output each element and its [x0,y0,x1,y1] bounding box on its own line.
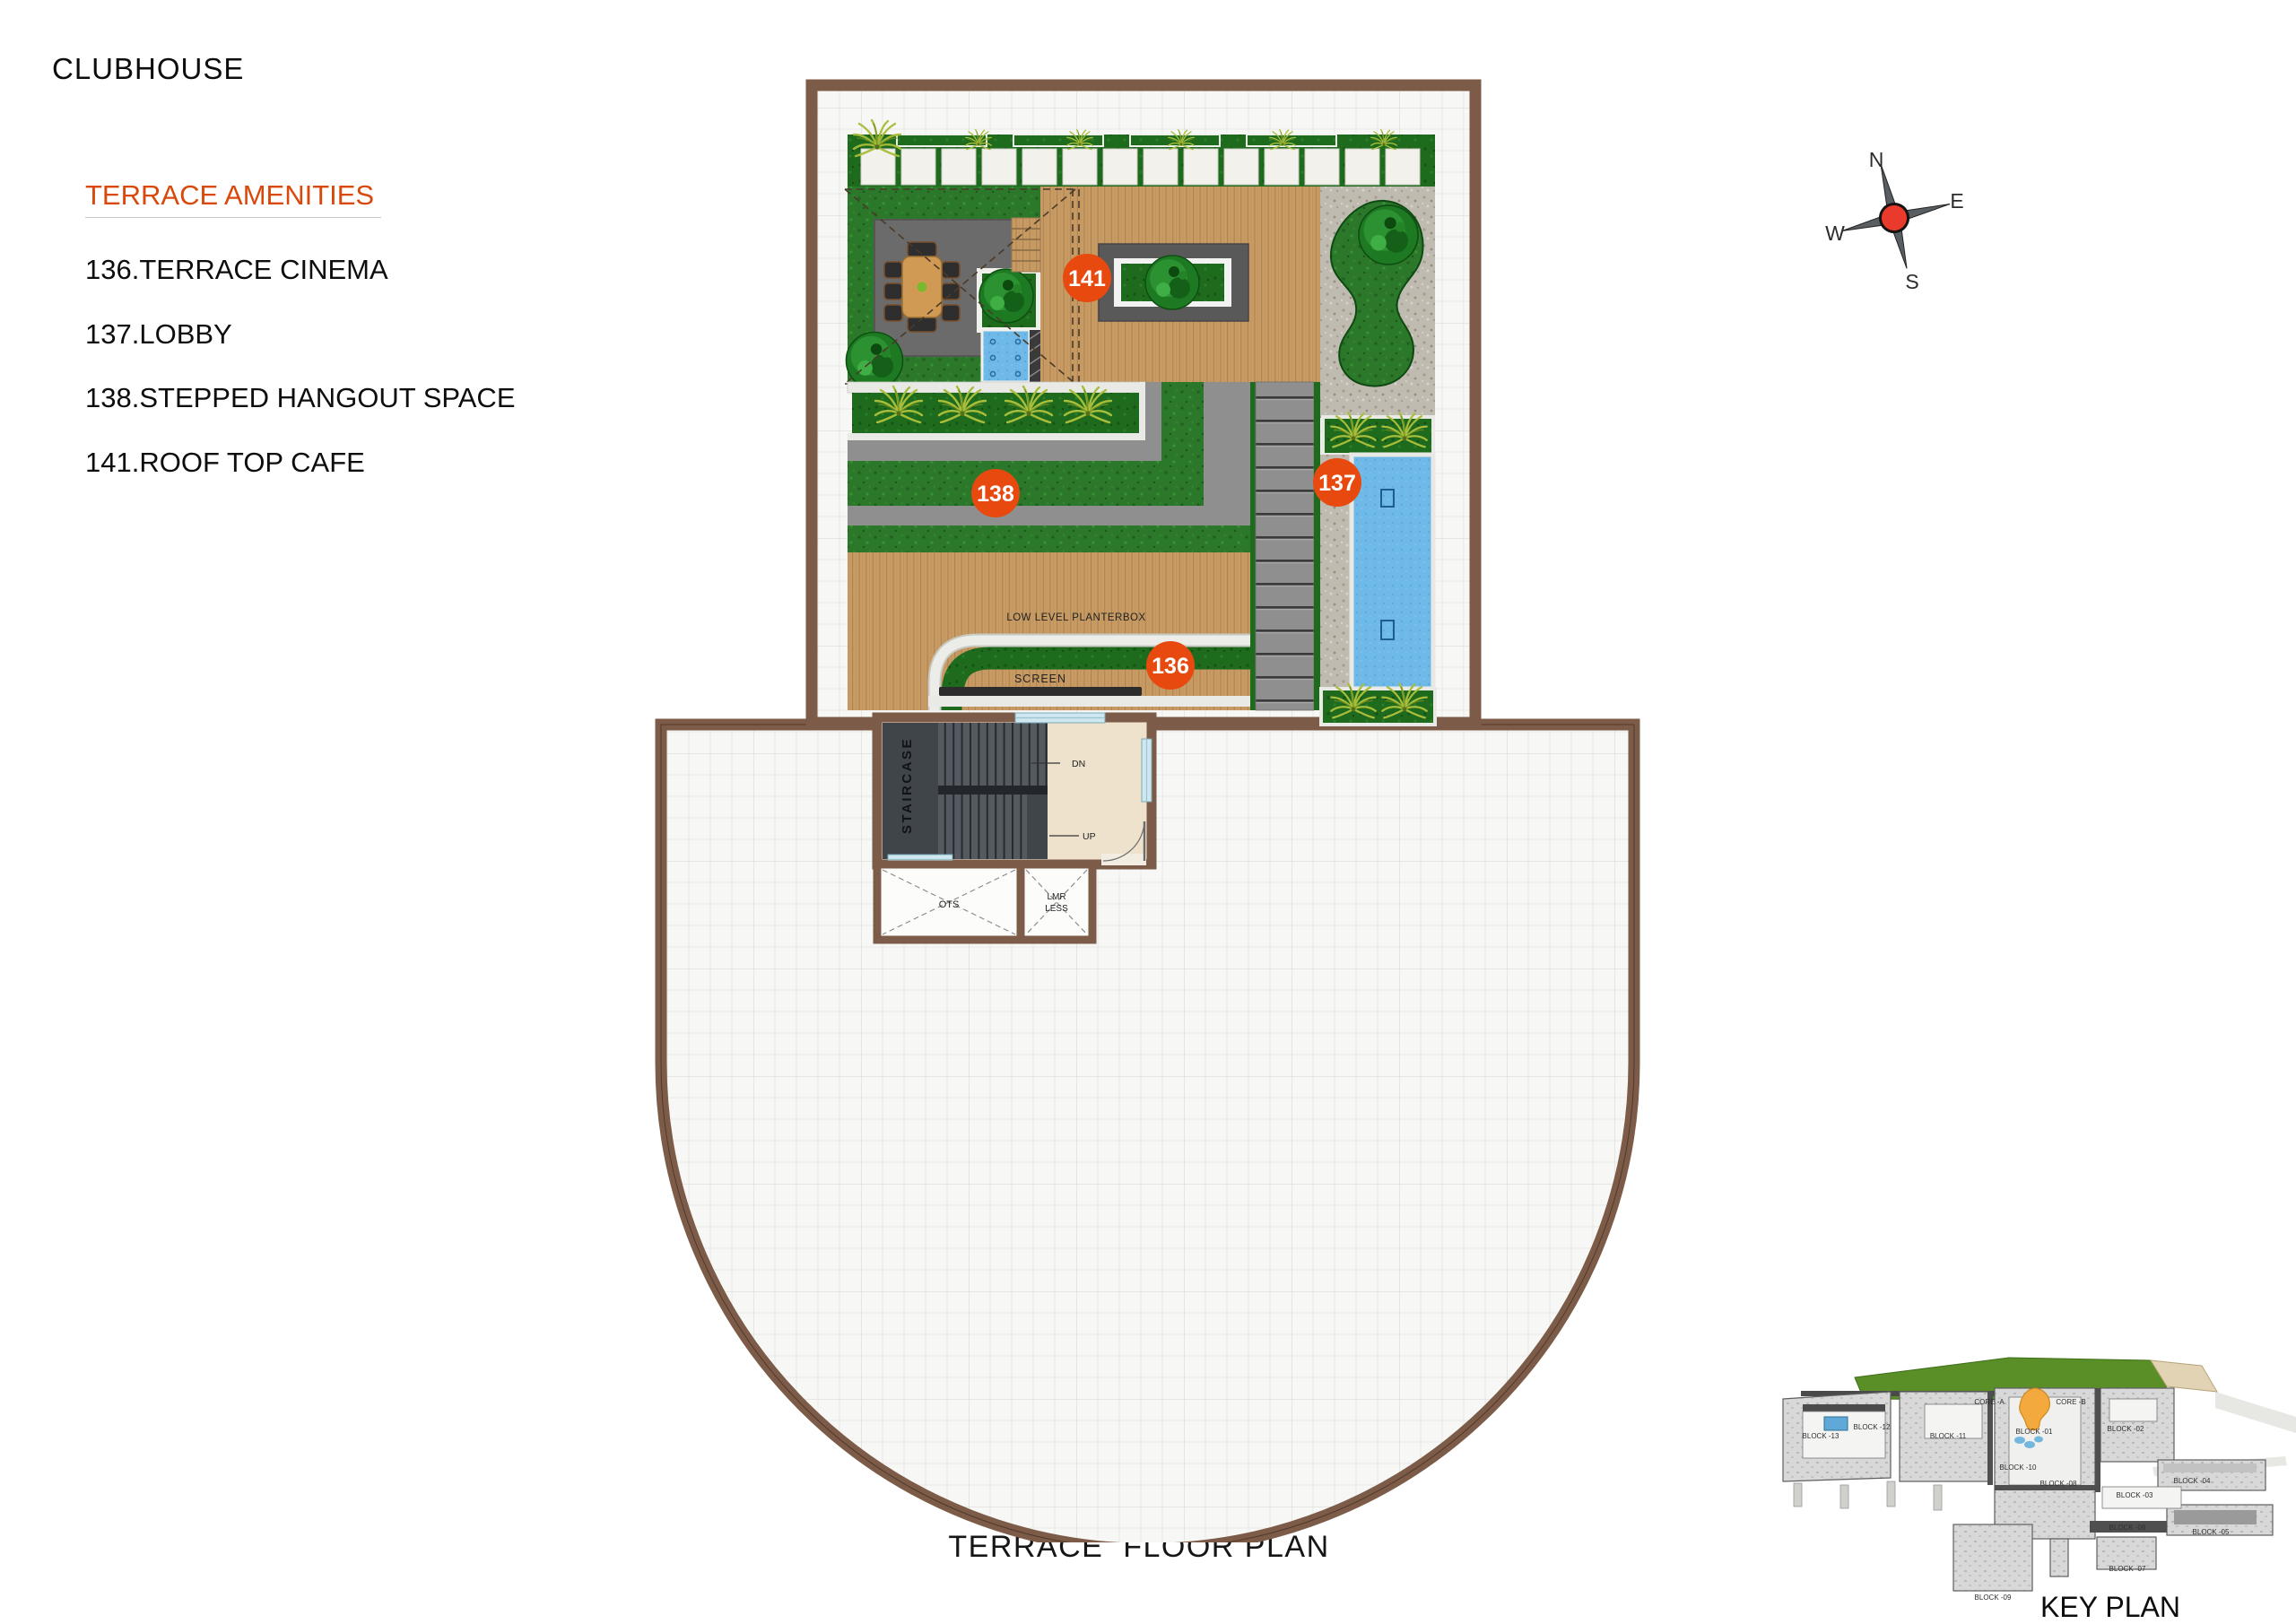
planter-and-plunge-pool [979,269,1040,382]
keyplan-label-block-05: BLOCK -05 [2193,1528,2230,1536]
staircase-block: STAIRCASE DN UP [877,713,1152,865]
keyplan-pool [1824,1417,1848,1430]
staircase-label: STAIRCASE [900,737,915,834]
terrace-cinema-zone: LOW LEVEL PLANTERBOX SCREEN [848,552,1256,710]
keyplan-label-block-06: BLOCK -06 [2109,1524,2146,1532]
keyplan-label-block-07: BLOCK -07 [2109,1565,2146,1573]
cinema-screen-bar [939,687,1142,696]
compass-center [1877,201,1911,235]
marker-137: 137 [1313,458,1361,507]
keyplan-label-core-b: CORE -B [2056,1398,2085,1406]
svg-text:138: 138 [977,482,1014,507]
compass-east-label: E [1950,189,1963,213]
keyplan-label-block-04: BLOCK -04 [2174,1477,2211,1485]
tree [1145,256,1199,309]
legend-item-137: 137.LOBBY [85,302,516,367]
tree [847,333,903,389]
keyplan-label-block-13: BLOCK -13 [1803,1432,1839,1440]
marker-141: 141 [1063,254,1111,302]
shaft-boxes: OTS LMR LESS [877,864,1092,940]
svg-text:136: 136 [1152,654,1189,679]
keyplan-label-block-08: BLOCK -08 [2040,1480,2077,1488]
low-level-planterbox-label: LOW LEVEL PLANTERBOX [1006,612,1145,623]
keyplan-label-block-09: BLOCK -09 [1975,1594,2012,1601]
tree [979,269,1033,323]
road [2215,1392,2296,1433]
legend-item-138: 138.STEPPED HANGOUT SPACE [85,366,516,430]
plunge-pool [982,330,1030,382]
compass-north-label: N [1869,148,1884,171]
keyplan-label-block-11: BLOCK -11 [1930,1432,1967,1440]
terrace-amenities-legend: TERRACE AMENITIES 136.TERRACE CINEMA 137… [85,179,516,494]
svg-text:141: 141 [1068,266,1106,291]
key-plan-map: CORE -A CORE -B BLOCK -01 BLOCK -02 BLOC… [1771,1341,2296,1601]
legend-list: 136.TERRACE CINEMA 137.LOBBY 138.STEPPED… [85,238,516,494]
bottom-path [928,696,1256,707]
keyplan-label-block-10: BLOCK -10 [2000,1463,2037,1472]
upper-terrace-block: LOW LEVEL PLANTERBOX SCREEN [812,85,1475,725]
lmr-label-1: LMR [1047,892,1065,902]
legend-item-141: 141.ROOF TOP CAFE [85,430,516,495]
compass-rose: N E W S [1794,117,2009,314]
dn-label: DN [1072,759,1085,769]
keyplan-label-core-a: CORE -A [1974,1398,2005,1406]
page-title: CLUBHOUSE [52,52,244,86]
screen-label: SCREEN [1014,673,1066,685]
gravel-garden [1320,187,1435,418]
keyplan-label-block-02: BLOCK -02 [2108,1425,2144,1433]
svg-text:137: 137 [1318,471,1356,496]
ots-label: OTS [939,899,960,910]
lmr-label-2: LESS [1045,904,1068,914]
keyplan-label-block-01: BLOCK -01 [2016,1428,2053,1436]
marker-138: 138 [971,469,1020,517]
tree [1359,205,1418,265]
terrace-lawn-strip [848,525,1256,552]
up-label: UP [1083,831,1096,842]
stair-treads [1256,382,1314,710]
marker-136: 136 [1146,641,1195,690]
terrace-floor-plan-drawing: LOW LEVEL PLANTERBOX SCREEN STAIRCASE [628,36,1722,1542]
deck-steps [1012,218,1040,272]
keyplan-label-block-03: BLOCK -03 [2117,1491,2153,1499]
keyplan-label-block-12: BLOCK -12 [1854,1423,1891,1431]
central-outdoor-stair [1250,382,1320,710]
legend-item-136: 136.TERRACE CINEMA [85,238,516,302]
deck-planter-box [1099,244,1248,321]
legend-heading: TERRACE AMENITIES [85,179,381,218]
keyplan-columns [1794,1481,1942,1510]
compass-west-label: W [1825,221,1845,245]
compass-south-label: S [1905,270,1918,293]
compass-needle [1829,150,1962,281]
stepped-hangout-space [848,382,1256,552]
